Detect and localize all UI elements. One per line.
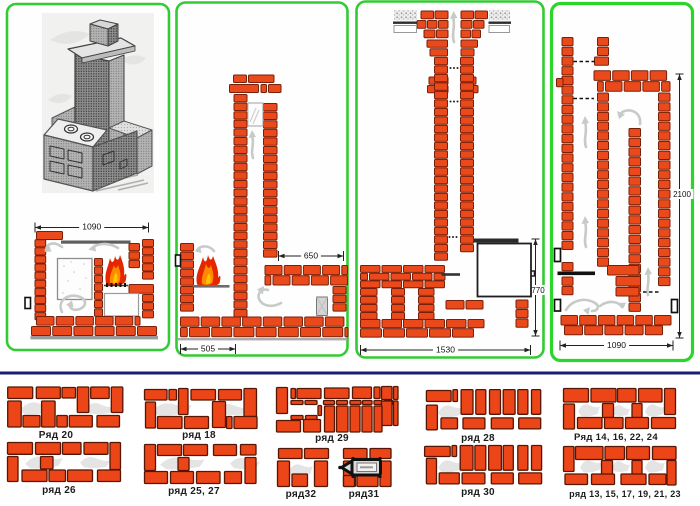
svg-text:1090: 1090 [607,340,626,350]
svg-text:ряд 26: ряд 26 [42,485,76,496]
svg-text:ряд 13, 15, 17, 19, 21, 23: ряд 13, 15, 17, 19, 21, 23 [569,489,681,499]
svg-text:ряд31: ряд31 [349,489,380,500]
svg-text:650: 650 [304,251,318,261]
svg-text:2100: 2100 [673,190,691,199]
svg-text:ряд32: ряд32 [286,489,317,500]
svg-text:770: 770 [531,286,545,295]
svg-text:ряд 29: ряд 29 [315,433,349,444]
svg-text:ряд 18: ряд 18 [182,430,216,441]
svg-text:1090: 1090 [82,222,101,232]
svg-text:ряд 28: ряд 28 [461,433,495,444]
svg-text:ряд 25, 27: ряд 25, 27 [168,486,220,497]
svg-text:1530: 1530 [436,345,455,355]
svg-text:505: 505 [201,344,215,354]
svg-text:ряд 30: ряд 30 [461,487,495,498]
svg-text:Ряд 14, 16, 22, 24: Ряд 14, 16, 22, 24 [574,432,658,443]
svg-text:Ряд 20: Ряд 20 [39,430,74,441]
